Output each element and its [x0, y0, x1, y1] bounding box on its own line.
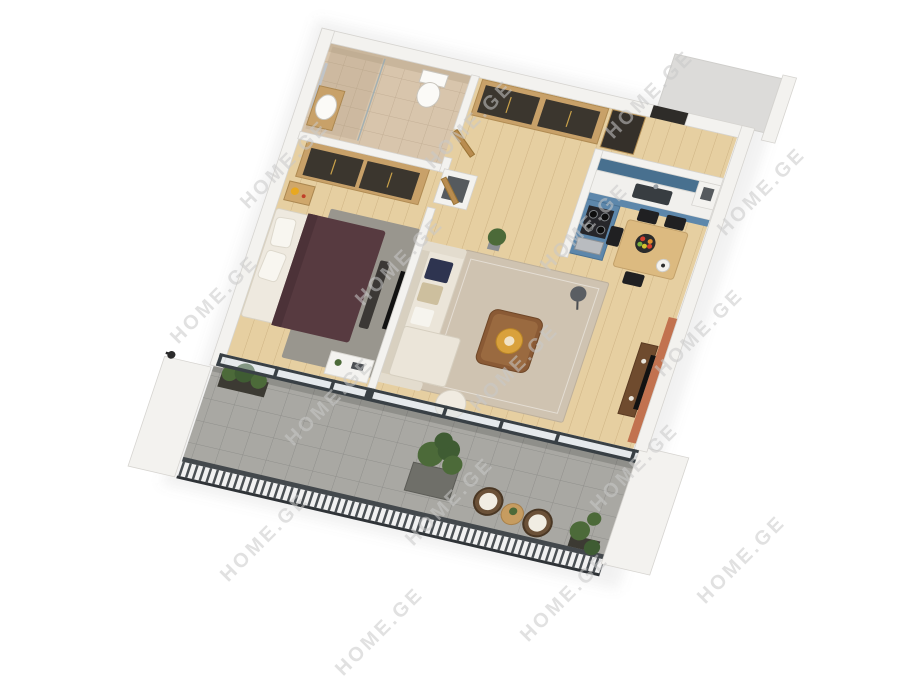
floor-plan-svg [0, 0, 900, 677]
floor-plan-3d-view [0, 0, 900, 677]
floor-plan-render: HOME.GEHOME.GEHOME.GEHOME.GEHOME.GEHOME.… [0, 0, 900, 677]
